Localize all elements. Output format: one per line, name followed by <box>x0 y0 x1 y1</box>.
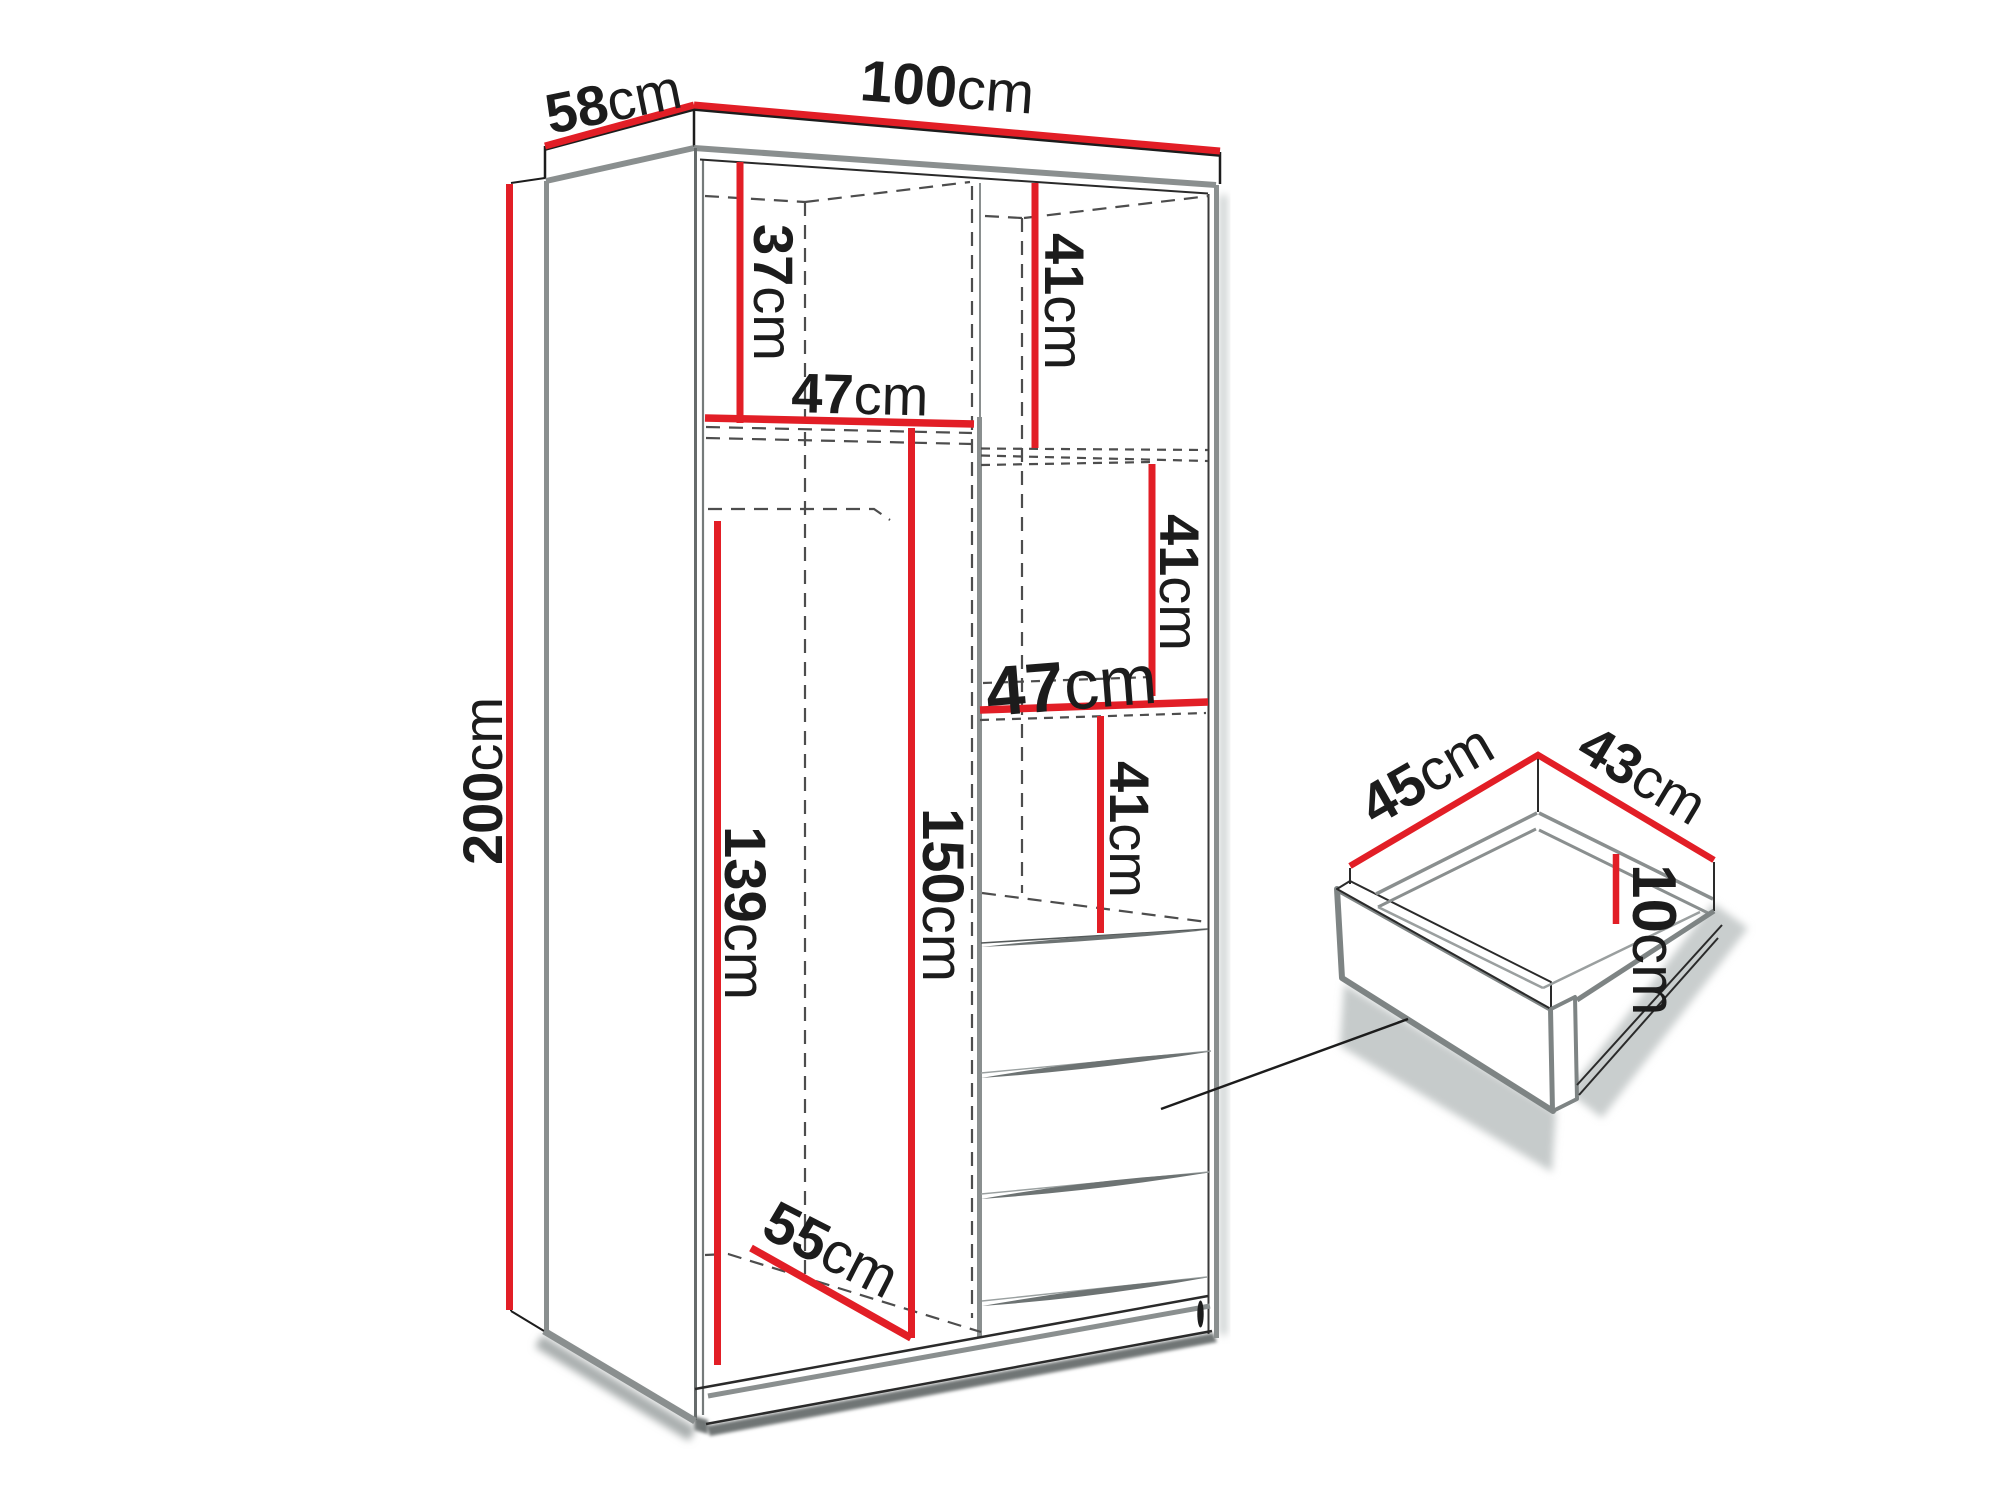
svg-text:41cm: 41cm <box>1148 514 1211 651</box>
svg-text:200cm: 200cm <box>451 697 514 865</box>
svg-text:41cm: 41cm <box>1098 761 1161 898</box>
svg-text:47cm: 47cm <box>983 640 1160 731</box>
svg-text:47cm: 47cm <box>791 361 930 428</box>
svg-text:139cm: 139cm <box>712 826 777 1000</box>
svg-text:37cm: 37cm <box>742 224 805 361</box>
svg-text:150cm: 150cm <box>910 808 975 982</box>
svg-text:100cm: 100cm <box>858 48 1037 126</box>
svg-text:41cm: 41cm <box>1033 233 1096 370</box>
svg-text:10cm: 10cm <box>1619 864 1688 1016</box>
